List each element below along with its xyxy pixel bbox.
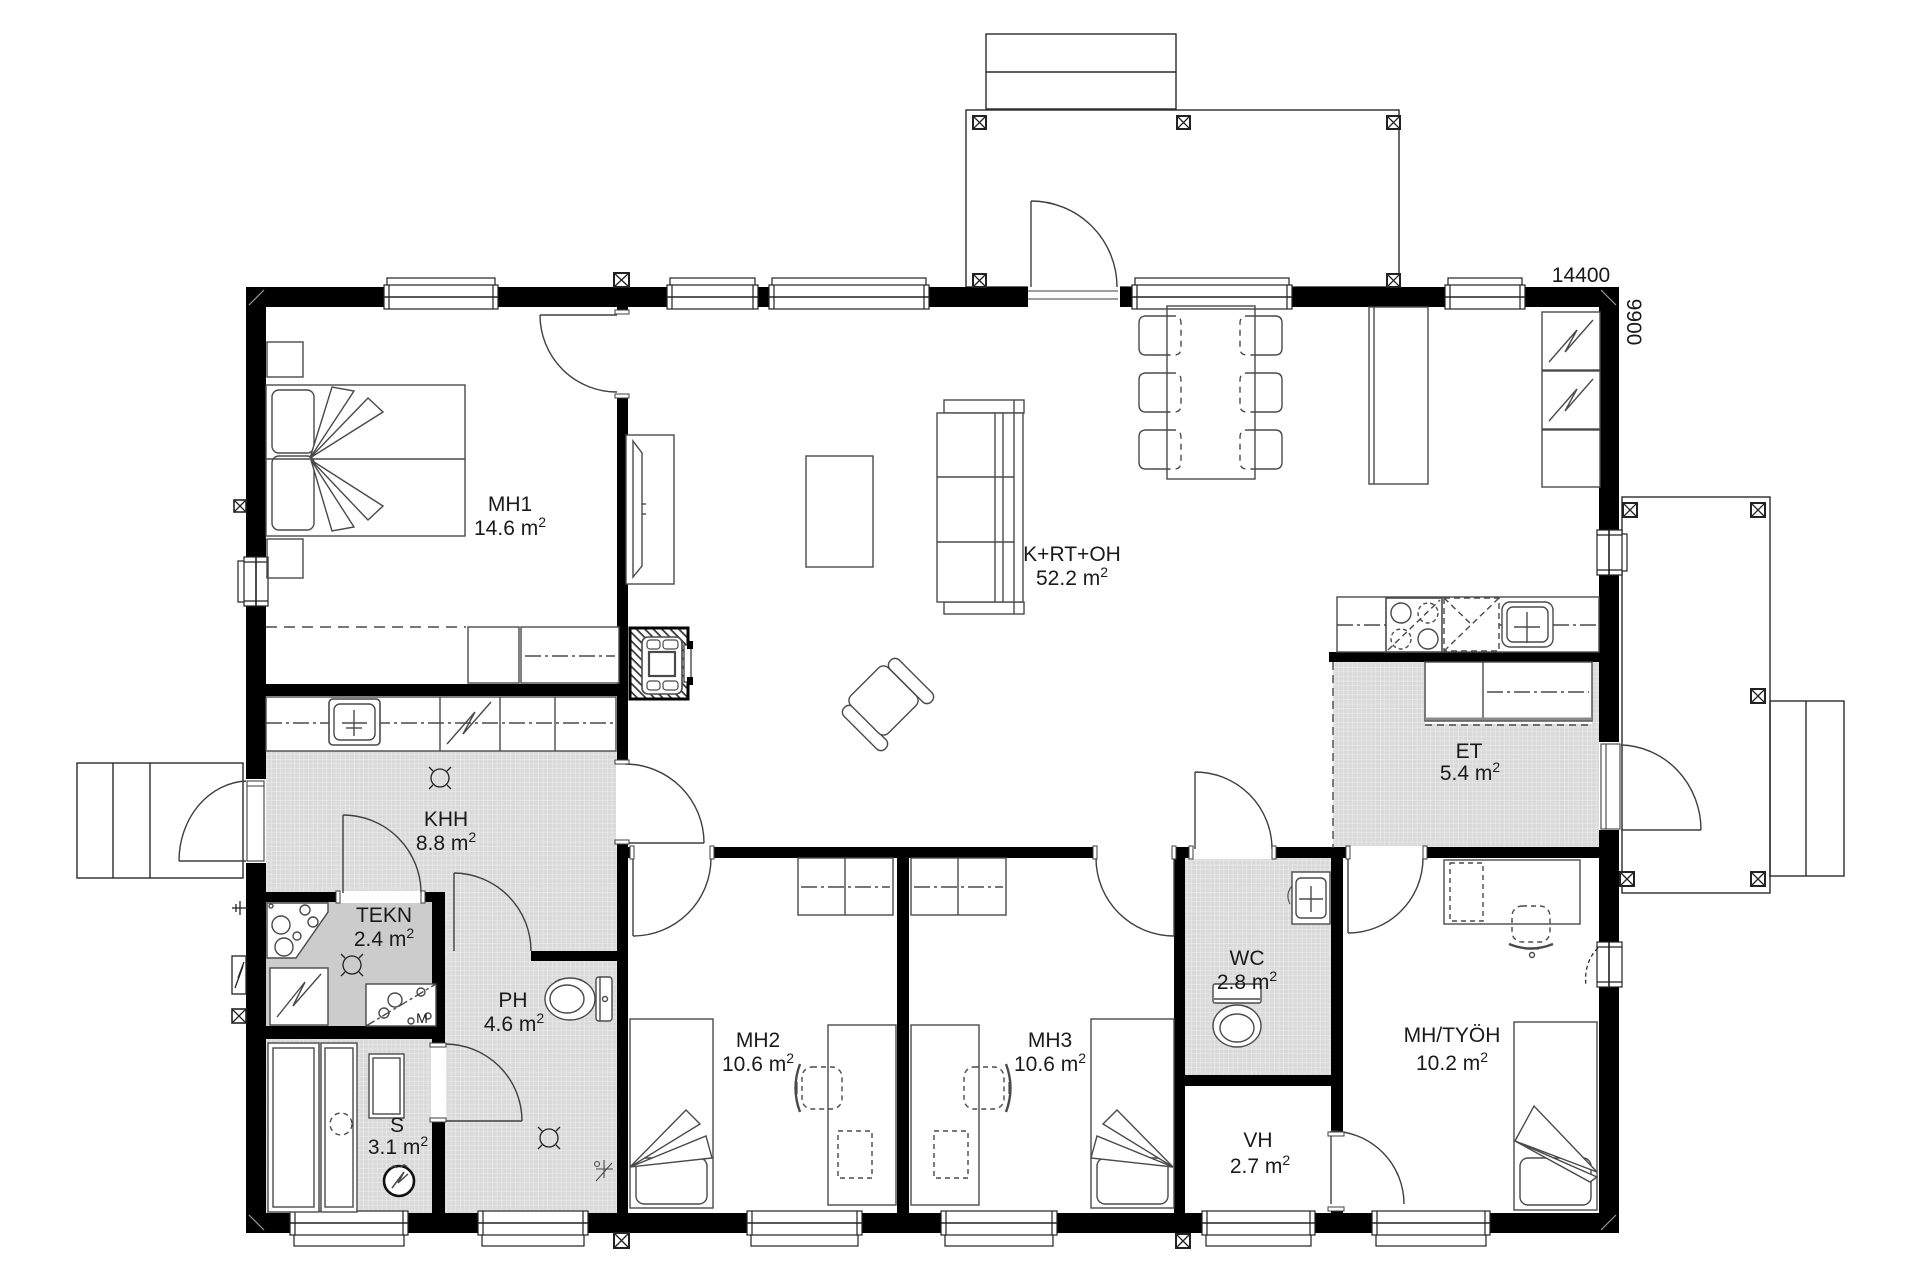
svg-text:5.4 m2: 5.4 m2 (1440, 759, 1501, 785)
svg-text:2.7 m2: 2.7 m2 (1230, 1152, 1291, 1178)
svg-text:VH: VH (1243, 1129, 1272, 1152)
svg-text:10.6 m2: 10.6 m2 (1014, 1050, 1086, 1076)
svg-text:2.4 m2: 2.4 m2 (354, 925, 415, 951)
svg-text:8.8 m2: 8.8 m2 (416, 829, 477, 855)
svg-text:KHH: KHH (424, 808, 468, 831)
svg-text:14400: 14400 (1552, 264, 1610, 287)
svg-text:52.2 m2: 52.2 m2 (1036, 564, 1108, 590)
svg-text:ET: ET (1456, 740, 1483, 763)
svg-text:MH1: MH1 (488, 493, 532, 516)
svg-text:PH: PH (498, 989, 527, 1012)
svg-text:MH3: MH3 (1028, 1029, 1072, 1052)
svg-text:TEKN: TEKN (356, 904, 412, 927)
svg-text:3.1 m2: 3.1 m2 (368, 1133, 429, 1159)
svg-text:10.6 m2: 10.6 m2 (722, 1050, 794, 1076)
svg-text:MH/TYÖH: MH/TYÖH (1404, 1024, 1501, 1047)
svg-text:9900: 9900 (1622, 299, 1645, 346)
svg-text:4.6 m2: 4.6 m2 (484, 1010, 545, 1036)
svg-text:MH2: MH2 (736, 1029, 780, 1052)
svg-text:2.8 m2: 2.8 m2 (1217, 968, 1278, 994)
svg-text:10.2 m2: 10.2 m2 (1416, 1049, 1488, 1075)
svg-text:14.6 m2: 14.6 m2 (474, 514, 546, 540)
svg-text:WC: WC (1230, 947, 1265, 970)
svg-text:K+RT+OH: K+RT+OH (1023, 543, 1121, 566)
svg-text:S: S (390, 1114, 404, 1137)
svg-text:M: M (416, 1010, 428, 1026)
